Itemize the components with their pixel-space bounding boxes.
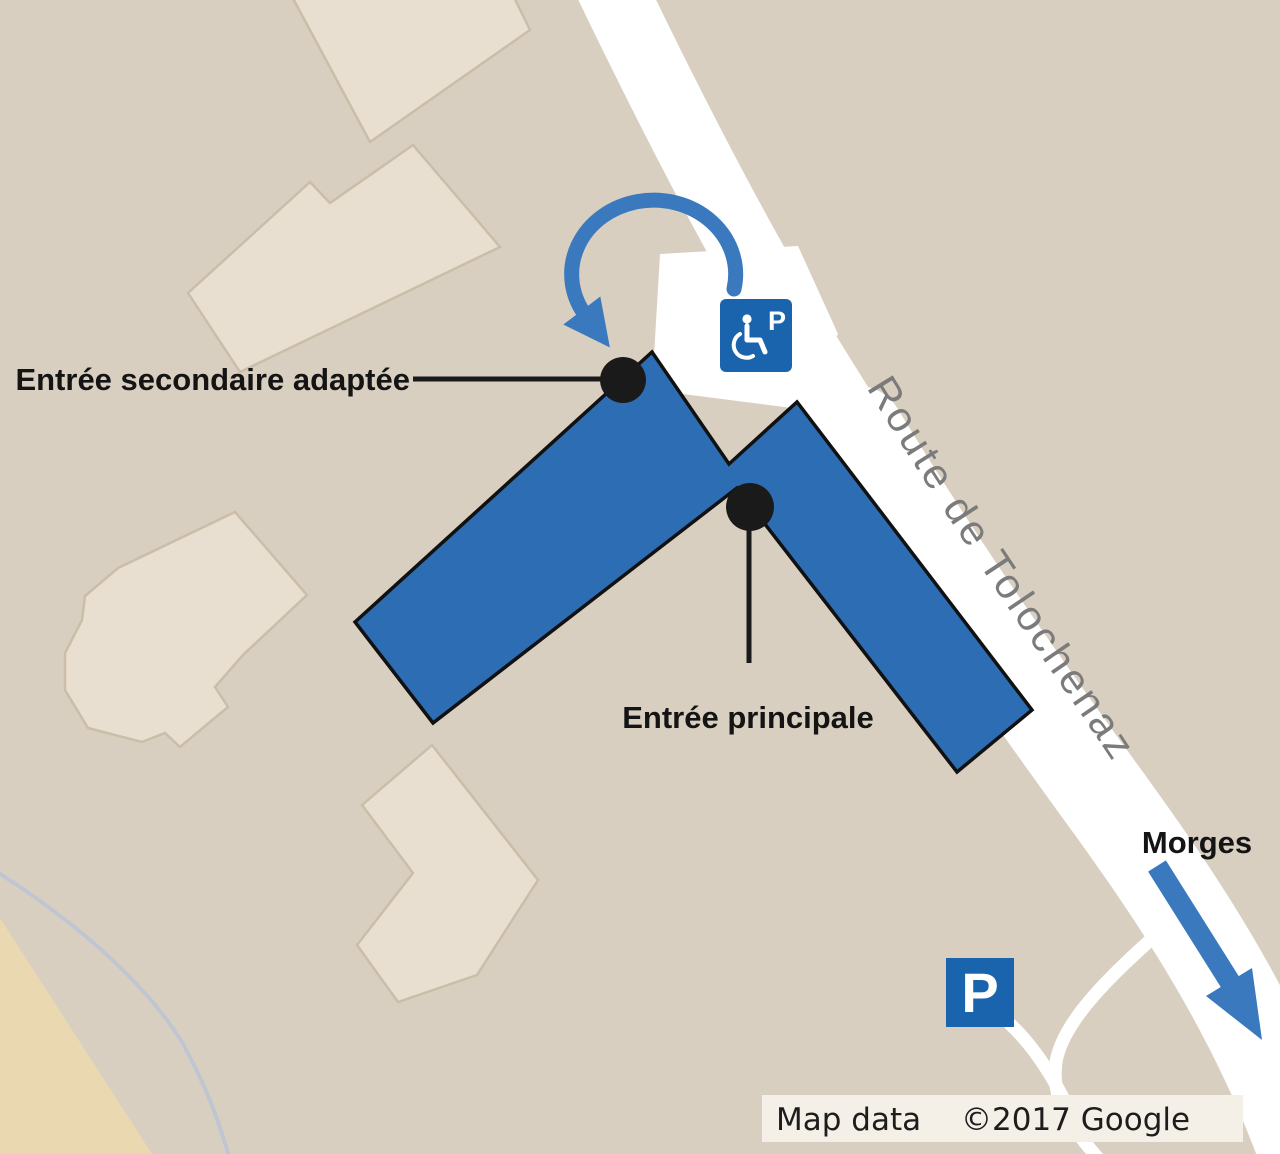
- attribution: Map data ©2017 Google: [762, 1095, 1243, 1142]
- parking-sign-letter: P: [961, 961, 998, 1024]
- access-map-figure: Route de Tolochenaz P Entrée secondaire …: [0, 0, 1280, 1154]
- attribution-copyright: ©2017 Google: [961, 1102, 1190, 1138]
- accessible-parking-sign-letter: P: [768, 306, 786, 336]
- wheelchair-icon-head: [742, 314, 751, 323]
- destination-morges-label: Morges: [1142, 825, 1252, 860]
- parking-sign: P: [946, 958, 1014, 1027]
- accessible-parking-sign: P: [720, 299, 792, 372]
- secondary-entrance-label: Entrée secondaire adaptée: [15, 362, 410, 397]
- attribution-map-data: Map data: [776, 1102, 921, 1138]
- main-entrance-label: Entrée principale: [622, 700, 874, 735]
- map-canvas: Route de Tolochenaz P Entrée secondaire …: [0, 0, 1280, 1154]
